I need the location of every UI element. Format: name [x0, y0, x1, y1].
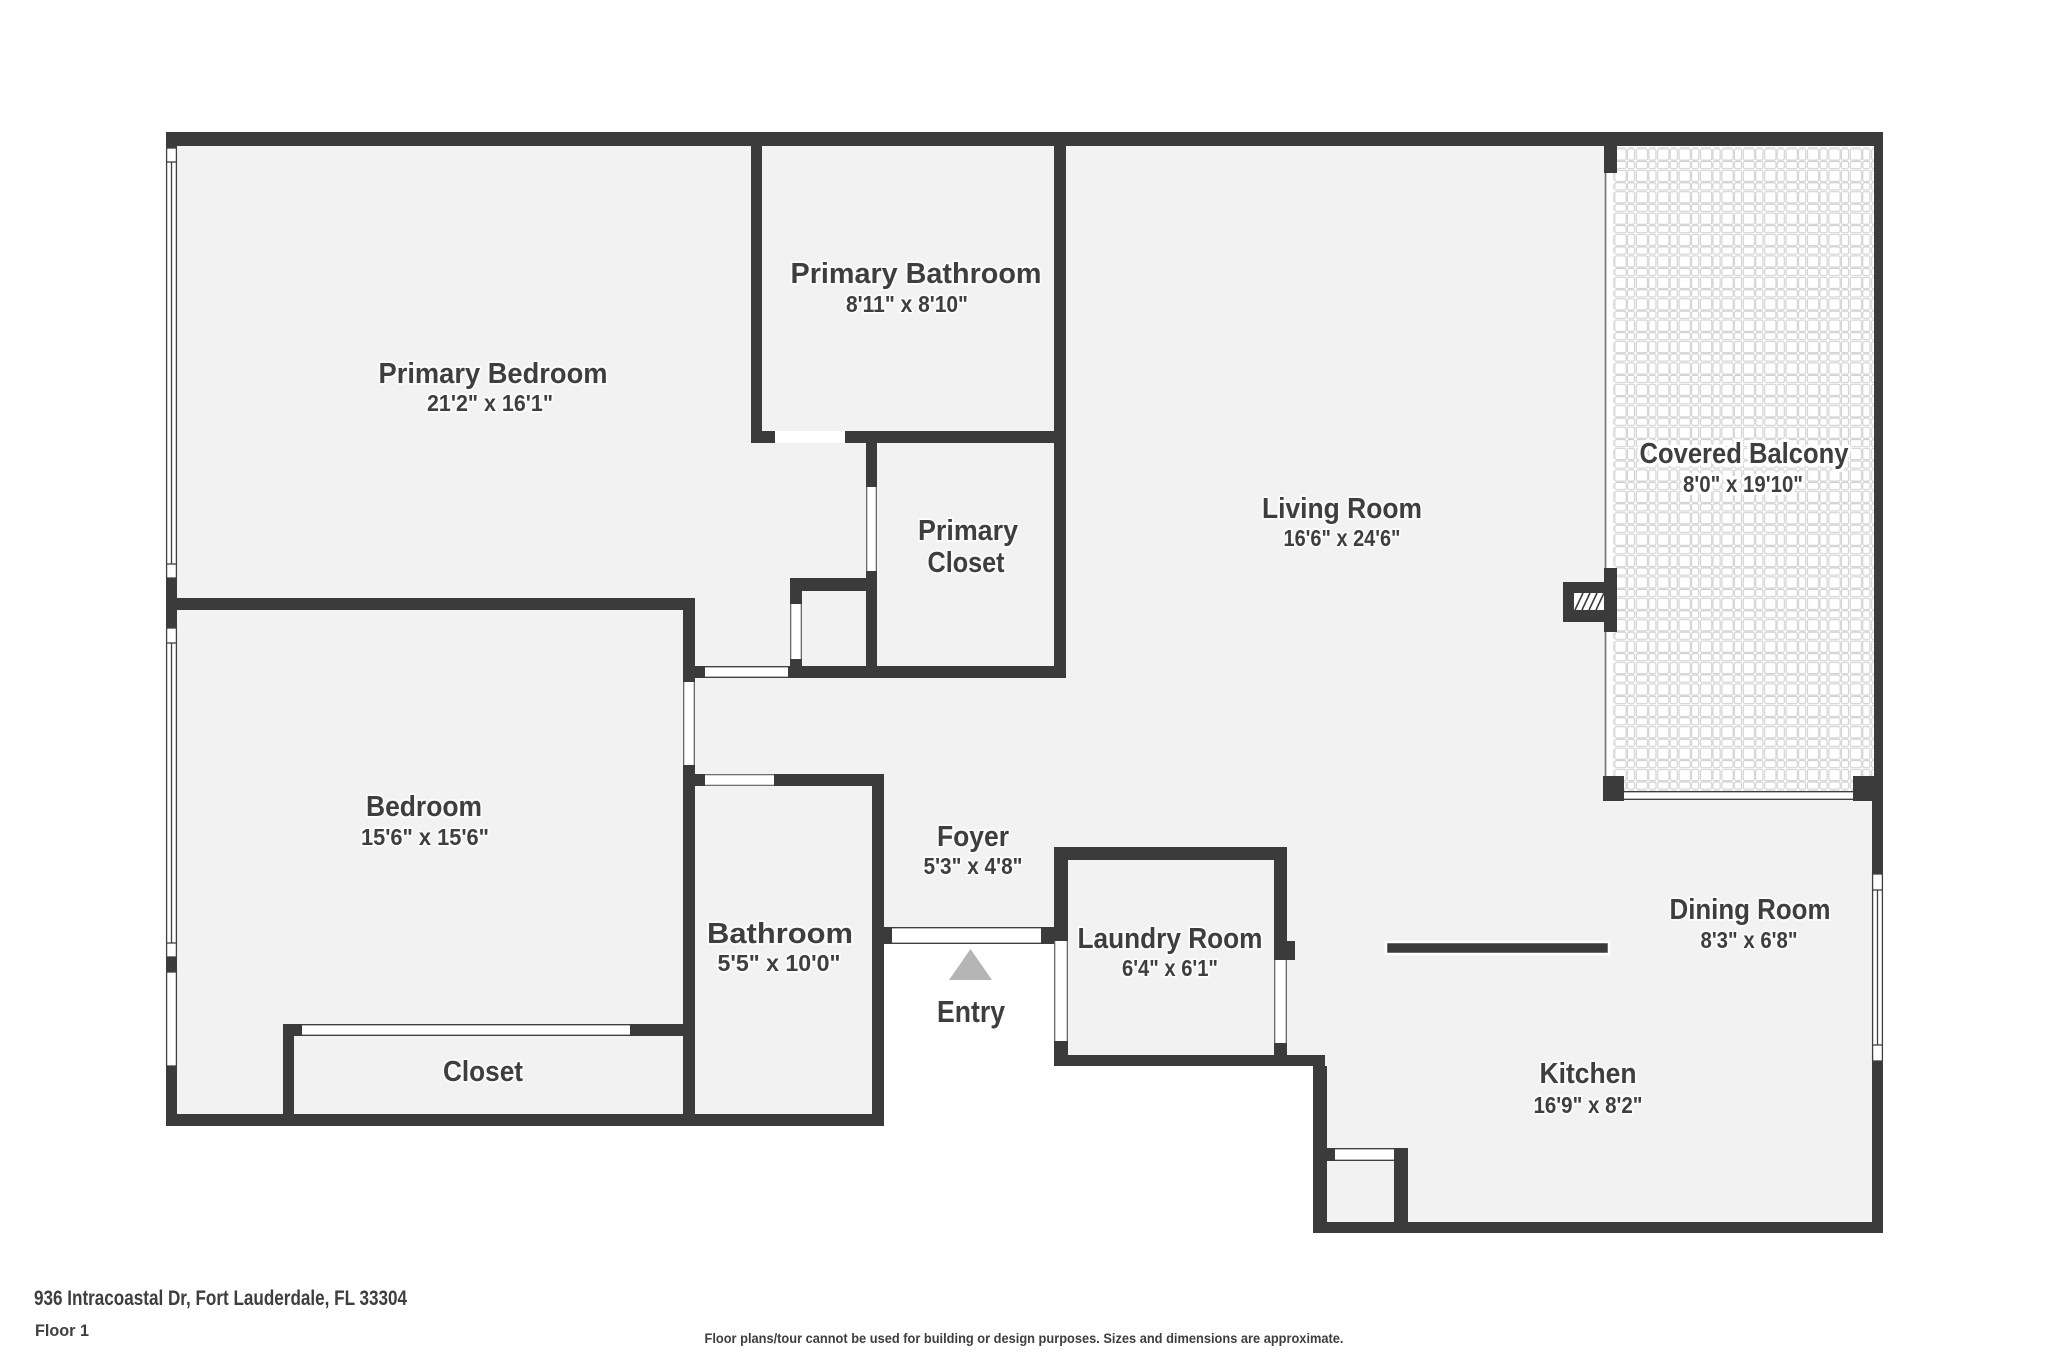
svg-text:936 Intracoastal Dr, Fort Laud: 936 Intracoastal Dr, Fort Lauderdale, FL…: [34, 1287, 407, 1310]
svg-text:8'3" x 6'8": 8'3" x 6'8": [1701, 927, 1798, 953]
svg-text:5'3" x 4'8": 5'3" x 4'8": [924, 853, 1023, 879]
svg-text:16'6" x 24'6": 16'6" x 24'6": [1284, 525, 1401, 551]
svg-text:Floor plans/tour cannot be use: Floor plans/tour cannot be used for buil…: [705, 1330, 1344, 1346]
svg-text:Bedroom: Bedroom: [366, 791, 482, 823]
svg-text:Bathroom: Bathroom: [707, 918, 853, 950]
svg-text:Floor 1: Floor 1: [35, 1321, 89, 1340]
svg-text:15'6" x 15'6": 15'6" x 15'6": [361, 824, 489, 850]
svg-text:Kitchen: Kitchen: [1540, 1058, 1637, 1090]
svg-text:Living Room: Living Room: [1262, 493, 1422, 525]
svg-text:Primary: Primary: [918, 515, 1018, 547]
svg-text:Primary Bathroom: Primary Bathroom: [791, 258, 1042, 290]
svg-text:Laundry Room: Laundry Room: [1078, 923, 1263, 955]
svg-text:8'11" x 8'10": 8'11" x 8'10": [846, 291, 968, 317]
svg-text:Foyer: Foyer: [937, 821, 1009, 853]
svg-text:6'4" x 6'1": 6'4" x 6'1": [1122, 955, 1218, 981]
svg-text:Dining Room: Dining Room: [1670, 894, 1831, 926]
svg-text:5'5" x 10'0": 5'5" x 10'0": [718, 950, 841, 976]
svg-text:16'9" x 8'2": 16'9" x 8'2": [1534, 1092, 1643, 1118]
svg-text:21'2" x 16'1": 21'2" x 16'1": [427, 390, 553, 416]
svg-text:Primary Bedroom: Primary Bedroom: [379, 358, 608, 390]
svg-text:8'0" x 19'10": 8'0" x 19'10": [1683, 471, 1803, 497]
svg-text:Entry: Entry: [937, 994, 1006, 1029]
svg-text:Closet: Closet: [443, 1056, 523, 1088]
svg-text:Closet: Closet: [928, 547, 1005, 579]
svg-text:Covered Balcony: Covered Balcony: [1640, 438, 1849, 470]
